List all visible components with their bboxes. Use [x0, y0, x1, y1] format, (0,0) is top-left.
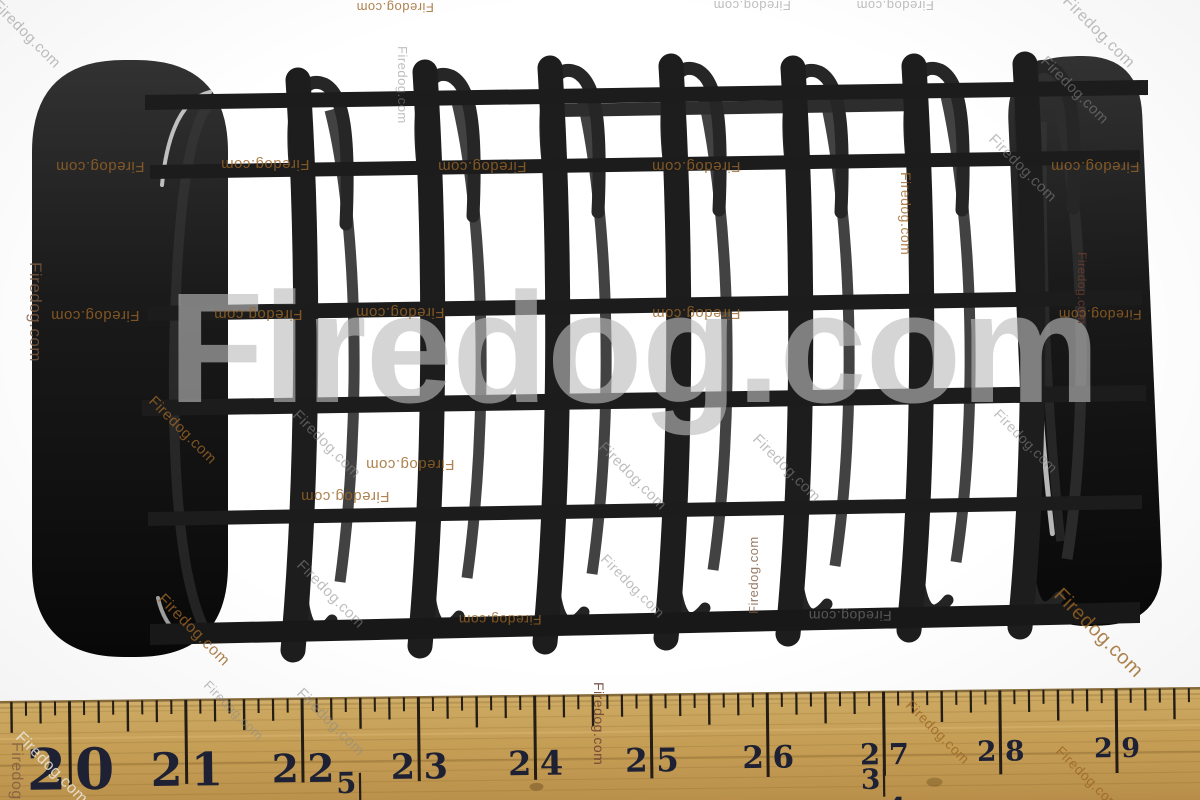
ruler-tick	[112, 701, 114, 715]
inch-numeral-digit: 8	[1005, 734, 1025, 767]
ruler-tick	[752, 693, 754, 707]
fraction-divider	[883, 769, 886, 797]
ruler-tick	[694, 694, 696, 708]
ruler-tick	[1057, 690, 1060, 721]
watermark-text: Firedog.com	[366, 456, 455, 473]
ruler-tick	[563, 695, 565, 717]
ruler-tick	[374, 698, 376, 712]
ruler-tick	[970, 691, 972, 713]
watermark-text: Firedog.com	[746, 536, 761, 614]
ruler-tick	[795, 693, 797, 715]
ruler-tick	[926, 691, 928, 705]
watermark-text: Firedog.com	[458, 612, 541, 628]
ruler-tick	[461, 697, 463, 711]
inch-numeral-digit: 2	[1094, 733, 1113, 764]
watermark-text: Firedog.com	[221, 156, 310, 173]
inch-numeral-digit: 4	[540, 744, 564, 783]
ruler-tick	[345, 698, 347, 712]
ruler-tick	[403, 697, 405, 711]
inch-numeral-digit: 2	[150, 743, 183, 797]
watermark-text: Firedog.com	[214, 306, 303, 323]
watermark-text: Firedog.com	[652, 158, 741, 175]
ruler-tick	[984, 690, 986, 704]
fraction-denominator: 4	[887, 791, 907, 800]
ruler-tick	[1028, 690, 1030, 712]
ruler-tick	[1173, 688, 1176, 719]
ruler-tick	[635, 695, 637, 709]
watermark-text: Firedog.com	[51, 307, 140, 324]
ruler-tick	[490, 696, 492, 710]
watermark-text: Firedog.com	[26, 262, 45, 362]
ruler-tick	[257, 699, 259, 713]
ruler-tick	[1188, 688, 1190, 702]
watermark-text: Firedog.com	[8, 742, 25, 800]
watermark-text: Firedog.com	[395, 46, 410, 124]
ruler-tick	[1159, 688, 1161, 702]
ruler-tick	[940, 691, 943, 722]
ruler-tick	[97, 701, 99, 723]
ruler-tick	[810, 693, 812, 707]
ruler-tick	[388, 697, 390, 719]
big-watermark: Firedog.com	[168, 261, 1099, 436]
ruler-tick	[1013, 690, 1015, 704]
ruler-tick	[1130, 689, 1132, 703]
fraction-denominator: 8	[363, 795, 384, 800]
ruler-tick	[25, 702, 27, 716]
ruler-tick	[621, 695, 623, 717]
ruler-tick	[781, 693, 783, 707]
watermark-text: Firedog.com	[1058, 307, 1141, 323]
watermark-text: Firedog.com	[1051, 158, 1140, 175]
watermark-text: Firedog.com	[356, 0, 434, 15]
ruler-tick	[955, 691, 957, 705]
ruler-tick	[1071, 689, 1073, 703]
inch-numeral-digit: 6	[772, 740, 794, 776]
product-photo: 202122232425262728295834Firedog.comFired…	[0, 0, 1200, 800]
inch-numeral-digit: 5	[656, 740, 679, 779]
watermark-text: Firedog.com	[438, 158, 527, 175]
ruler-tick	[708, 694, 711, 725]
inch-numeral-digit: 2	[625, 740, 648, 779]
fraction-numerator: 5	[336, 766, 357, 800]
inch-numeral-digit: 2	[391, 747, 416, 788]
inch-numeral-digit: 2	[271, 746, 299, 792]
ruler-tick	[1086, 689, 1088, 711]
ruler-tick	[868, 692, 870, 706]
inch-numeral-digit: 3	[423, 746, 448, 787]
ruler-tick	[141, 700, 143, 714]
watermark-text: Firedog.com	[808, 608, 891, 624]
inch-numeral-digit: 2	[977, 735, 997, 768]
inch-numeral-digit: 1	[191, 742, 224, 796]
ruler-tick	[577, 695, 579, 709]
watermark-text: Firedog.com	[591, 682, 607, 765]
ruler-tick	[737, 693, 739, 715]
ruler-tick	[10, 702, 13, 733]
ruler-tick	[272, 699, 274, 721]
ruler-tick	[839, 692, 841, 706]
inch-numeral-digit: 2	[307, 746, 335, 792]
watermark-text: Firedog.com	[856, 0, 934, 13]
ruler-tick	[853, 692, 855, 714]
ruler-tick	[359, 698, 362, 729]
ruler-tick	[504, 696, 506, 718]
watermark-text: Firedog.com	[301, 488, 390, 505]
watermark-text: Firedog.com	[1075, 252, 1089, 324]
ruler-tick	[519, 696, 521, 710]
photo-canvas: 202122232425262728295834Firedog.comFired…	[0, 0, 1200, 800]
ruler-tick	[664, 694, 666, 708]
ruler-tick	[824, 692, 827, 723]
ruler-tick	[679, 694, 681, 716]
watermark-text: Firedog.com	[56, 158, 145, 175]
watermark-text: Firedog.com	[356, 304, 445, 321]
watermark-text: Firedog.com	[652, 305, 741, 322]
ruler-tick	[287, 699, 289, 713]
inch-numeral-digit: 7	[889, 737, 910, 771]
ruler-tick	[83, 701, 85, 715]
inch-numeral-digit: 2	[508, 744, 532, 783]
fraction-divider	[359, 773, 362, 800]
ruler-tick	[1101, 689, 1103, 703]
ruler-tick	[432, 697, 434, 711]
watermark-text: Firedog.com	[898, 172, 914, 255]
ruler-tick	[54, 701, 56, 715]
ruler-tick	[897, 692, 899, 706]
ruler-tick	[1144, 689, 1146, 711]
ruler-tick	[1042, 690, 1044, 704]
ruler-tick	[475, 696, 478, 727]
ruler-tick	[548, 696, 550, 710]
ruler-tick	[723, 694, 725, 708]
fraction-numerator: 3	[861, 763, 881, 796]
ruler-tick	[126, 701, 129, 732]
ruler-tick	[170, 700, 172, 714]
ruler-tick	[446, 697, 448, 719]
watermark-text: Firedog.com	[713, 0, 791, 13]
ruler-tick	[156, 700, 158, 722]
ruler-tick	[39, 702, 41, 724]
ruler-tick	[199, 700, 201, 714]
inch-numeral-digit: 2	[742, 740, 764, 776]
inch-numeral-digit: 9	[1121, 733, 1140, 764]
